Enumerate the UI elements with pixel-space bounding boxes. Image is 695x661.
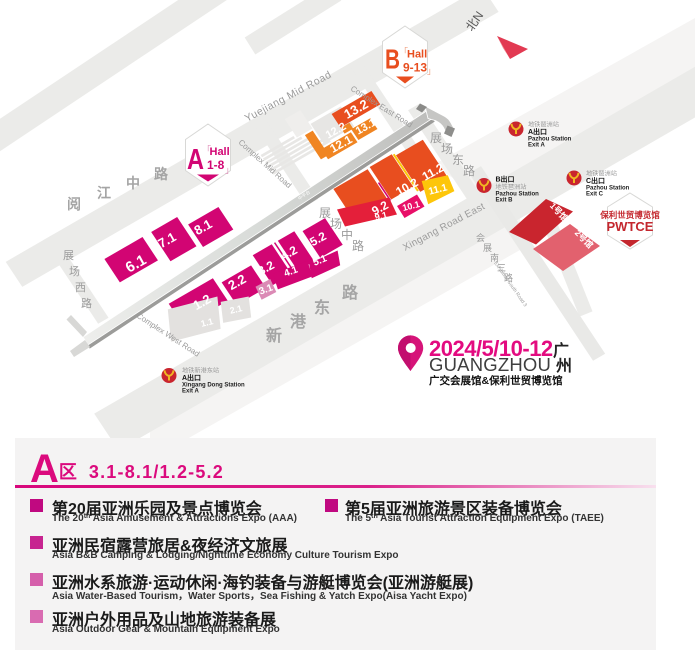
svg-text:C出口: C出口 — [586, 176, 605, 185]
svg-text:展: 展 — [483, 243, 492, 253]
svg-text:路: 路 — [463, 163, 475, 178]
svg-text:展: 展 — [63, 249, 74, 262]
svg-text:地铁琶洲站: 地铁琶洲站 — [586, 170, 617, 178]
svg-text:路: 路 — [81, 297, 92, 310]
svg-text:新: 新 — [266, 326, 282, 345]
svg-text:10.1: 10.1 — [401, 199, 420, 213]
svg-text:Exhibition South Road 3: Exhibition South Road 3 — [492, 261, 528, 309]
svg-text:Exit A: Exit A — [528, 143, 545, 149]
svg-text:A出口: A出口 — [182, 373, 201, 382]
svg-text:PWTCE: PWTCE — [607, 219, 654, 234]
svg-text:B: B — [385, 44, 400, 75]
svg-text:Hall: Hall — [210, 146, 230, 158]
svg-text:路: 路 — [154, 166, 169, 182]
svg-text:会: 会 — [476, 232, 485, 243]
svg-text:阅: 阅 — [67, 196, 81, 212]
svg-text:地铁新港东站: 地铁新港东站 — [182, 367, 219, 375]
svg-text:江: 江 — [97, 185, 111, 201]
svg-text:Exit A: Exit A — [182, 389, 199, 395]
svg-text:广交会展馆&保利世贸博览馆: 广交会展馆&保利世贸博览馆 — [429, 374, 563, 387]
svg-text:Exit C: Exit C — [586, 192, 604, 198]
svg-text:东: 东 — [314, 298, 330, 317]
svg-text:B出口: B出口 — [496, 175, 515, 184]
svg-text:州: 州 — [555, 357, 572, 375]
svg-text:地铁琶洲站: 地铁琶洲站 — [528, 121, 559, 129]
svg-text:中: 中 — [126, 175, 140, 191]
svg-text:Exit B: Exit B — [496, 198, 514, 204]
svg-text:9.1: 9.1 — [374, 210, 389, 223]
svg-text:路: 路 — [342, 283, 359, 302]
svg-text:港: 港 — [290, 312, 307, 331]
svg-text:A出口: A出口 — [528, 127, 547, 136]
svg-text:1-8: 1-8 — [207, 158, 225, 172]
svg-text:路: 路 — [352, 238, 364, 253]
svg-text:GUANGZHOU: GUANGZHOU — [429, 354, 551, 375]
svg-text:西: 西 — [75, 282, 86, 294]
svg-text:9-13: 9-13 — [403, 61, 427, 75]
svg-text:Hall: Hall — [407, 49, 427, 61]
svg-text:」: 」 — [225, 165, 234, 175]
svg-text:」: 」 — [427, 66, 436, 76]
svg-text:地铁琶洲站: 地铁琶洲站 — [496, 183, 527, 191]
svg-text:场: 场 — [69, 264, 80, 278]
